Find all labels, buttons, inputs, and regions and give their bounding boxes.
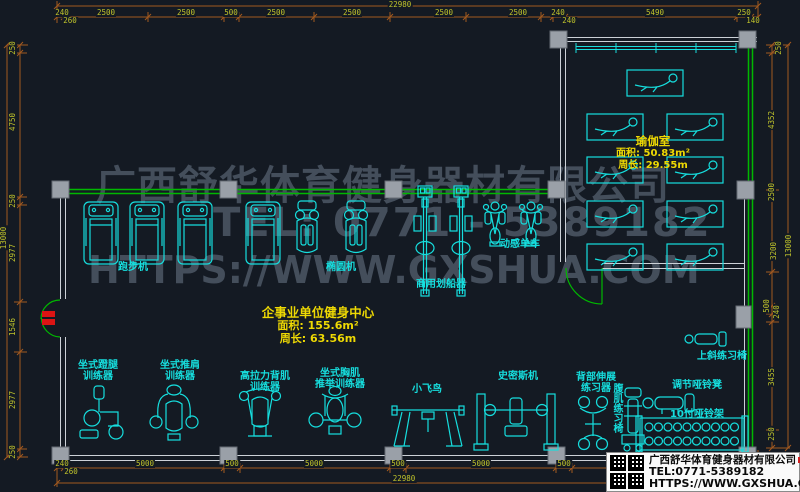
chest-press-machine xyxy=(309,387,361,435)
cad-floorplan-canvas: 广西舒华体育健身器材有限公司 TEL: 0771 - 5389182 HTTPS… xyxy=(0,0,800,492)
window-glazing xyxy=(576,43,736,53)
incline-bench xyxy=(685,332,726,346)
yoga-room-name: 瑜伽室 xyxy=(616,135,690,148)
adjustable-bench xyxy=(643,394,694,414)
smith-machine xyxy=(474,394,558,450)
main-room-name: 企事业单位健身中心 xyxy=(262,306,375,320)
qr-tile-icon xyxy=(610,455,626,471)
title-block-text: 广西舒华体育健身器材有限公司 TEL:0771-5389182 HTTPS://… xyxy=(649,455,800,489)
floorplan-drawing xyxy=(0,0,800,492)
main-room-label: 企事业单位健身中心 面积: 155.6m² 周长: 63.56m xyxy=(262,306,375,345)
shoulder-press-machine xyxy=(150,385,198,440)
treadmills xyxy=(84,202,280,264)
entrance-door xyxy=(41,300,60,337)
qr-code-icon xyxy=(610,455,644,489)
spin-bikes xyxy=(484,202,543,246)
yoga-room-label: 瑜伽室 面积: 50.83m² 周长: 29.55m xyxy=(616,135,690,171)
leg-press-machine xyxy=(80,386,123,439)
yoga-room-area: 面积: 50.83m² xyxy=(616,148,690,160)
back-extension-machine xyxy=(579,397,608,450)
main-room-area: 面积: 155.6m² xyxy=(262,320,375,333)
cable-fly-machine xyxy=(392,406,464,446)
qr-tile-icon xyxy=(628,455,644,471)
ellipticals xyxy=(296,201,368,253)
title-block-url: HTTPS://WWW.GXSHUA.COM xyxy=(649,478,800,490)
main-room-perimeter: 周长: 63.56m xyxy=(262,333,375,346)
ab-bench xyxy=(622,388,644,451)
lat-pulldown-machine xyxy=(240,389,281,436)
title-block: 广西舒华体育健身器材有限公司 TEL:0771-5389182 HTTPS://… xyxy=(606,452,800,492)
dumbbell-rack xyxy=(636,416,748,452)
yoga-room-door xyxy=(566,268,602,304)
yoga-room-perimeter: 周长: 29.55m xyxy=(616,160,690,172)
rowing-machines xyxy=(414,186,472,296)
equipment xyxy=(80,70,748,452)
qr-tile-icon xyxy=(610,473,626,489)
qr-tile-icon xyxy=(628,473,644,489)
